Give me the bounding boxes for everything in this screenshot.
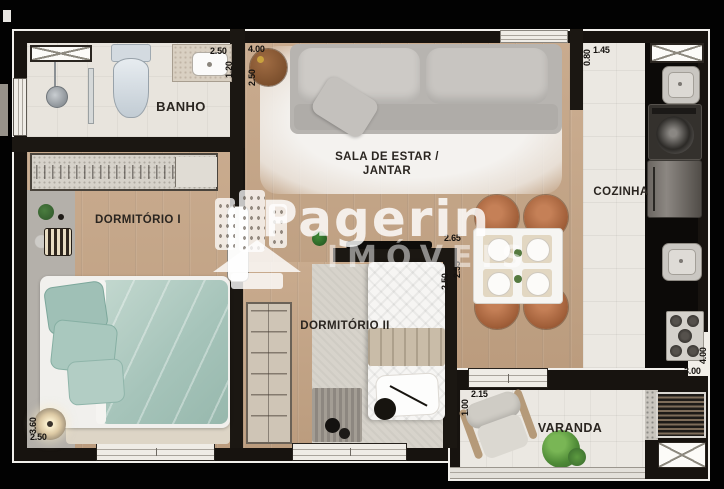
window-line	[22, 79, 23, 135]
dormitorio1-wardrobe	[30, 153, 218, 191]
burner	[678, 329, 692, 343]
sala-width-measure: 4.00	[248, 44, 265, 54]
sala-plant-icon	[312, 231, 327, 246]
dormitorio2-depth-measure: 2.50	[440, 264, 450, 290]
placemat	[483, 235, 513, 263]
window-line	[501, 39, 567, 40]
varanda-width-measure: 2.15	[471, 389, 488, 399]
top-wall-window	[500, 30, 568, 43]
floor-plan: BANHO SALA DE ESTAR / JANTAR COZINHA DOR…	[0, 0, 724, 489]
burner	[670, 315, 682, 327]
kitchen-sink-icon	[662, 243, 702, 281]
dormitorio2-window	[292, 443, 407, 461]
wardrobe-hangers	[251, 310, 287, 436]
varanda-label: VARANDA	[532, 421, 608, 435]
laundry-sink-icon	[662, 66, 700, 104]
bed1-duvet	[100, 280, 228, 424]
dormitorio2-wardrobe	[246, 302, 292, 444]
cozinha-entry-depth-measure: 0.80	[582, 44, 592, 66]
exterior-ledge-mark	[3, 10, 11, 22]
varanda-depth-measure: 1.00	[460, 392, 470, 416]
sala-label-line1: SALA DE ESTAR /	[317, 151, 457, 163]
table-greenery	[514, 249, 522, 257]
dormitorio2-label: DORMITÓRIO II	[295, 320, 395, 332]
wall-banho-dorm1	[12, 137, 230, 152]
kitchen-cabinet-symbol	[650, 43, 704, 63]
washer-panel	[652, 108, 696, 114]
sala-label-line2: JANTAR	[317, 165, 457, 177]
shower-head-icon	[46, 86, 68, 108]
window-line	[501, 35, 567, 36]
table-greenery	[514, 275, 522, 283]
dormitorio1-plant-icon	[38, 204, 54, 220]
washing-machine-icon	[648, 104, 702, 160]
wall-dorm1-hall	[230, 148, 243, 448]
kitchen-entry-floor	[570, 110, 583, 368]
dormitorio1-width-measure: 2.50	[30, 432, 47, 442]
placemat	[483, 269, 513, 297]
burner	[670, 345, 682, 357]
varanda-window	[468, 368, 548, 388]
ac-condenser-icon	[656, 392, 706, 438]
window-tick	[508, 374, 509, 383]
bed2-blanket	[368, 328, 445, 366]
dormitorio2-width-measure: 2.65	[444, 233, 461, 243]
sala-depth-measure: 2.50	[247, 56, 257, 86]
camera-gadget-icon	[325, 418, 340, 433]
wall-sala-dorm2	[333, 248, 443, 262]
window-line	[18, 79, 19, 135]
dining-depth-measure: 2.55	[452, 252, 462, 278]
bed1	[40, 276, 230, 428]
bed1-pillow	[67, 358, 126, 406]
cozinha-width-measure: 3.00	[684, 366, 701, 376]
decor-tray	[44, 228, 72, 256]
varanda-railing	[450, 467, 645, 479]
sofa	[290, 44, 562, 134]
lamp-center	[47, 421, 53, 427]
cozinha-label: COZINHA	[585, 186, 657, 198]
wall-banho-sala	[230, 29, 245, 148]
dormitorio1-depth-measure: 3.60	[28, 408, 38, 434]
ac-cabinet-symbol	[658, 442, 706, 468]
window-tick	[350, 448, 351, 456]
cozinha-depth-measure: 4.00	[698, 338, 708, 364]
window-tick	[156, 448, 157, 456]
banho-depth-measure: 1.20	[224, 54, 234, 78]
tv-console	[346, 241, 432, 249]
banho-label: BANHO	[143, 99, 219, 114]
media-console	[312, 388, 362, 442]
exterior-wall-mark	[0, 84, 8, 136]
dormitorio1-label: DORMITÓRIO I	[88, 214, 188, 226]
floor-lamp-icon	[374, 398, 396, 420]
sink-drain	[678, 82, 682, 86]
washer-drum	[656, 116, 694, 154]
sink-drain	[207, 62, 212, 67]
plate-icon	[487, 272, 511, 296]
plate-icon	[526, 272, 550, 296]
dining-table	[473, 228, 563, 304]
cozinha-floor	[583, 43, 645, 368]
banho-window	[13, 78, 27, 136]
cozinha-entry-width-measure: 1.45	[593, 45, 610, 55]
burner	[687, 315, 699, 327]
wardrobe-shelf	[175, 157, 217, 187]
table-flower	[257, 56, 264, 63]
decor-dot	[58, 214, 64, 220]
sofa-cushion-right	[426, 48, 548, 104]
sink-drain	[679, 259, 683, 263]
camera-gadget-icon	[339, 428, 350, 439]
varanda-plant-icon	[568, 448, 586, 466]
plate-icon	[487, 238, 511, 262]
dormitorio1-window	[96, 443, 215, 461]
dormitorio1-door	[227, 206, 249, 282]
placemat	[522, 269, 552, 297]
shower-glass-panel	[88, 68, 94, 124]
placemat	[522, 235, 552, 263]
railing-line	[450, 472, 645, 473]
plate-icon	[526, 238, 550, 262]
shower-niche	[30, 45, 92, 62]
wall-sala-cozinha	[570, 29, 583, 110]
